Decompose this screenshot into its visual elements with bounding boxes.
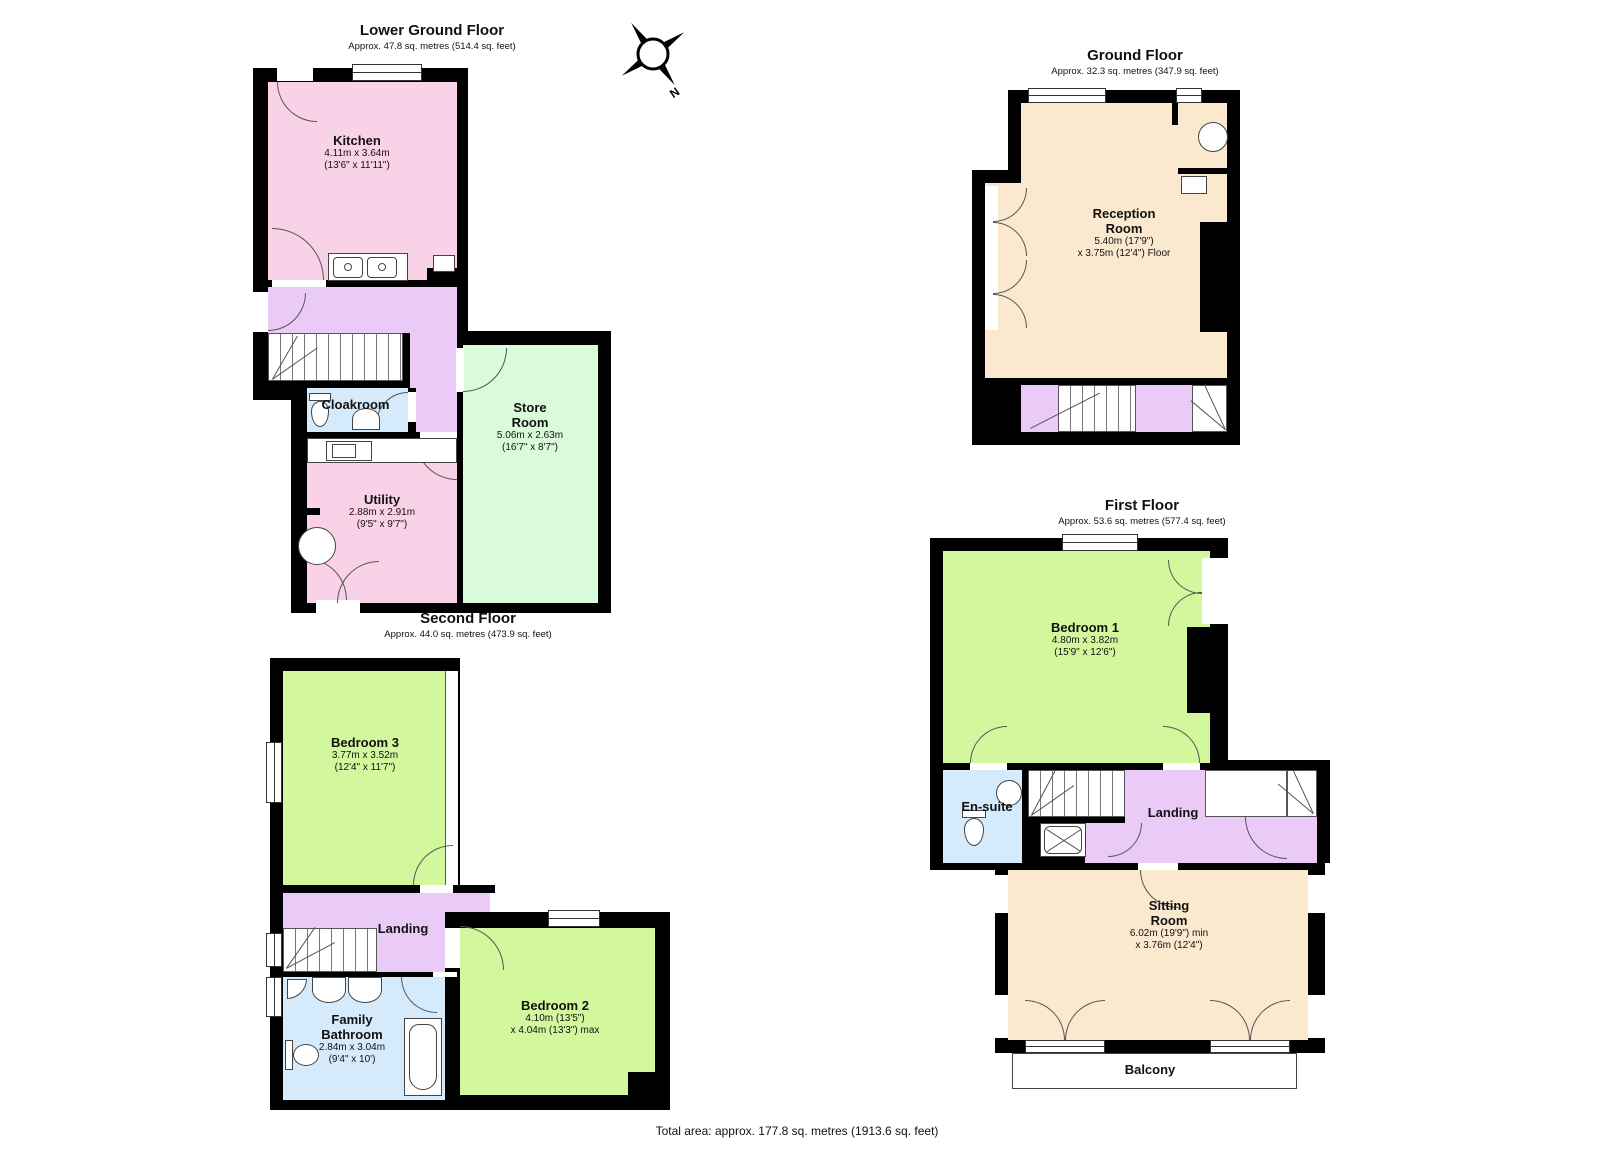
sink-drain-icon xyxy=(378,263,386,271)
door-opening xyxy=(272,280,326,287)
window xyxy=(1062,534,1138,551)
door-opening xyxy=(253,292,268,332)
wall xyxy=(294,508,301,534)
floor-title: Ground Floor xyxy=(985,47,1285,64)
room-dim: 3.77m x 3.52m xyxy=(290,750,440,762)
floor-title: Second Floor xyxy=(318,610,618,627)
window xyxy=(1028,88,1106,103)
en-suite-label: En-suite xyxy=(947,799,1027,814)
window xyxy=(352,64,422,81)
room-dim: (12'4" x 11'7") xyxy=(290,762,440,774)
balcony-label: Balcony xyxy=(1050,1062,1250,1077)
room-dim: 2.84m x 3.04m xyxy=(282,1042,422,1054)
wall xyxy=(1136,378,1227,385)
room-dim: x 4.04m (13'3") max xyxy=(480,1025,630,1037)
sink-drain-icon xyxy=(344,263,352,271)
room-name: Room xyxy=(465,415,595,430)
cloakroom-label: Cloakroom xyxy=(303,397,408,412)
basin-icon xyxy=(312,977,346,1003)
floor-title: Lower Ground Floor xyxy=(282,22,582,39)
bedroom-3-label: Bedroom 3 3.77m x 3.52m (12'4" x 11'7") xyxy=(290,735,440,773)
room-dim: (16'7" x 8'7") xyxy=(465,442,595,454)
wall xyxy=(1178,168,1227,174)
room-dim: x 3.75m (12'4") Floor xyxy=(1054,248,1194,260)
sitting-room-label: Sitting Room 6.02m (19'9") min x 3.76m (… xyxy=(1094,898,1244,951)
window xyxy=(1176,88,1202,103)
ground-floor-title: Ground Floor Approx. 32.3 sq. metres (34… xyxy=(985,47,1285,77)
room-name: Landing xyxy=(353,921,453,936)
bedroom-2-label: Bedroom 2 4.10m (13'5") x 4.04m (13'3") … xyxy=(480,998,630,1036)
floor-subtitle: Approx. 44.0 sq. metres (473.9 sq. feet) xyxy=(318,629,618,640)
floorplan-page: Lower Ground Floor Approx. 47.8 sq. metr… xyxy=(0,0,1600,1163)
room-dim: (9'5" x 9'7") xyxy=(307,519,457,531)
room-dim: 5.06m x 2.63m xyxy=(465,430,595,442)
room-dim: 6.02m (19'9") min xyxy=(1094,928,1244,940)
ff-landing-label: Landing xyxy=(1123,805,1223,820)
room-name: Cloakroom xyxy=(303,397,408,412)
door-opening xyxy=(1138,863,1178,870)
room-name: Bedroom 2 xyxy=(480,998,630,1013)
window xyxy=(548,910,600,927)
room-name: Utility xyxy=(307,492,457,507)
window xyxy=(266,933,282,967)
room-name: Balcony xyxy=(1050,1062,1250,1077)
room-name: Room xyxy=(1054,221,1194,236)
north-label: N xyxy=(667,84,682,100)
chimney-breast xyxy=(1200,222,1227,332)
french-door-sill xyxy=(1025,1040,1105,1053)
window xyxy=(266,977,282,1017)
door-opening xyxy=(1163,763,1200,770)
room-name: Bedroom 3 xyxy=(290,735,440,750)
floor-subtitle: Approx. 47.8 sq. metres (514.4 sq. feet) xyxy=(282,41,582,52)
sf-landing xyxy=(283,893,490,912)
room-dim: 4.10m (13'5") xyxy=(480,1013,630,1025)
window-opening xyxy=(995,995,1008,1038)
room-name: En-suite xyxy=(947,799,1027,814)
room-dim: 4.80m x 3.82m xyxy=(1010,635,1160,647)
room-name: Reception xyxy=(1054,206,1194,221)
window-opening xyxy=(995,875,1008,913)
sf-landing-label: Landing xyxy=(353,921,453,936)
wall xyxy=(1172,101,1178,125)
reception-room-label: Reception Room 5.40m (17'9") x 3.75m (12… xyxy=(1054,206,1194,259)
room-name: Store xyxy=(465,400,595,415)
lower-ground-floor-title: Lower Ground Floor Approx. 47.8 sq. metr… xyxy=(282,22,582,52)
french-door-recess xyxy=(1202,558,1228,624)
hallway xyxy=(410,333,457,432)
wall xyxy=(628,1072,655,1095)
door-opening xyxy=(408,392,416,422)
room-name: Family xyxy=(282,1012,422,1027)
boiler-icon xyxy=(298,527,336,565)
sink-icon xyxy=(1181,176,1207,194)
room-dim: (9'4" x 10') xyxy=(282,1054,422,1066)
total-area: Total area: approx. 177.8 sq. metres (19… xyxy=(597,1124,997,1138)
window xyxy=(266,742,282,803)
room-dim: (13'6" x 11'11") xyxy=(282,160,432,172)
french-door-sill xyxy=(1210,1040,1290,1053)
room-name: Kitchen xyxy=(282,133,432,148)
room-name: Sitting xyxy=(1094,898,1244,913)
room-name: Room xyxy=(1094,913,1244,928)
window-opening xyxy=(1308,995,1325,1038)
basin-icon xyxy=(348,977,382,1003)
door-opening xyxy=(277,66,313,81)
family-bathroom-label: Family Bathroom 2.84m x 3.04m (9'4" x 10… xyxy=(282,1012,422,1065)
room-name: Landing xyxy=(1123,805,1223,820)
store-room-label: Store Room 5.06m x 2.63m (16'7" x 8'7") xyxy=(465,400,595,453)
room-dim: x 3.76m (12'4") xyxy=(1094,940,1244,952)
stairs xyxy=(268,333,403,381)
first-floor-title: First Floor Approx. 53.6 sq. metres (577… xyxy=(992,497,1292,527)
bedroom-1-label: Bedroom 1 4.80m x 3.82m (15'9" x 12'6") xyxy=(1010,620,1160,658)
kitchen-label: Kitchen 4.11m x 3.64m (13'6" x 11'11") xyxy=(282,133,432,171)
room-name: Bathroom xyxy=(282,1027,422,1042)
bedroom-3-room xyxy=(283,671,445,885)
appliance-icon xyxy=(433,255,455,272)
second-floor-title: Second Floor Approx. 44.0 sq. metres (47… xyxy=(318,610,618,640)
floor-subtitle: Approx. 53.6 sq. metres (577.4 sq. feet) xyxy=(992,516,1292,527)
floor-title: First Floor xyxy=(992,497,1292,514)
wall xyxy=(1021,378,1061,385)
room-dim: 2.88m x 2.91m xyxy=(307,507,457,519)
compass-icon: N xyxy=(608,14,692,106)
door-opening xyxy=(970,763,1007,770)
window-opening xyxy=(1308,875,1325,913)
sink-bowl-icon xyxy=(332,444,356,458)
room-dim: (15'9" x 12'6") xyxy=(1010,647,1160,659)
round-table-icon xyxy=(1198,122,1228,152)
room-name: Bedroom 1 xyxy=(1010,620,1160,635)
floor-subtitle: Approx. 32.3 sq. metres (347.9 sq. feet) xyxy=(985,66,1285,77)
utility-label: Utility 2.88m x 2.91m (9'5" x 9'7") xyxy=(307,492,457,530)
chimney-breast xyxy=(1187,627,1228,713)
room-dim: 4.11m x 3.64m xyxy=(282,148,432,160)
wall xyxy=(455,885,495,893)
room-dim: 5.40m (17'9") xyxy=(1054,236,1194,248)
door-opening xyxy=(420,885,453,893)
